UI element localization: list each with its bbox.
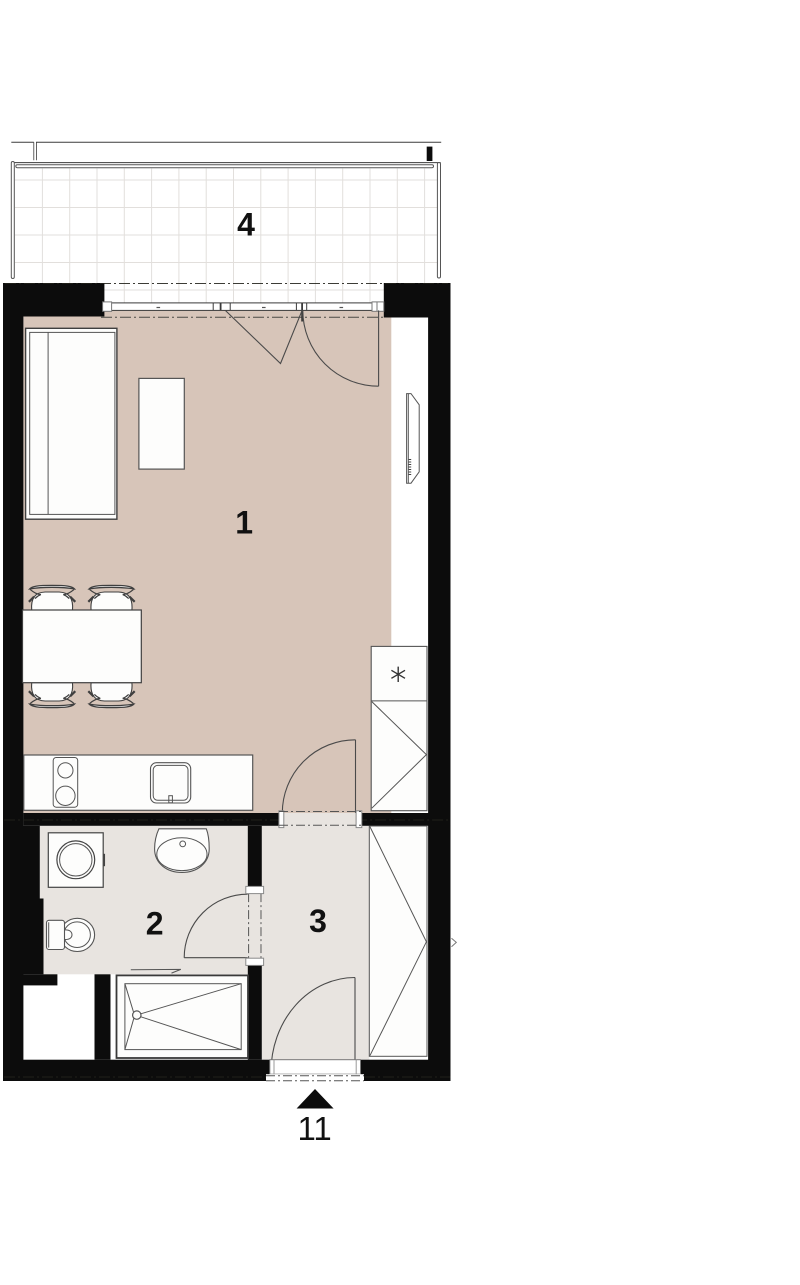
svg-text:3: 3 (309, 903, 327, 939)
svg-text:2: 2 (146, 905, 164, 941)
svg-text:4: 4 (237, 207, 255, 243)
svg-text:11: 11 (297, 1110, 331, 1147)
svg-text:1: 1 (235, 505, 253, 541)
